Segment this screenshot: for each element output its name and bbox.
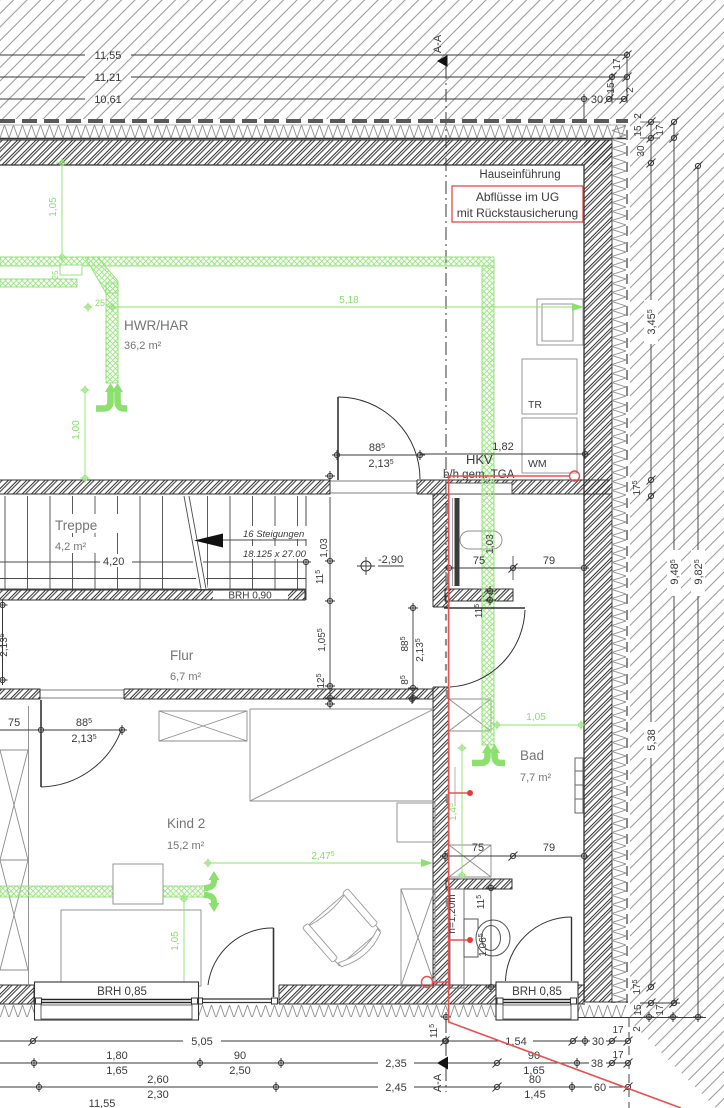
svg-text:2,50: 2,50	[229, 1065, 250, 1077]
svg-text:17: 17	[612, 58, 623, 70]
svg-text:11,55: 11,55	[89, 1098, 116, 1108]
svg-text:2,135: 2,135	[368, 458, 393, 470]
svg-text:Hauseinführung: Hauseinführung	[479, 169, 560, 181]
svg-text:15: 15	[606, 82, 617, 94]
svg-text:15: 15	[633, 125, 644, 137]
svg-text:5,05: 5,05	[191, 1036, 212, 1048]
svg-text:75: 75	[8, 717, 20, 729]
svg-text:1,05: 1,05	[48, 197, 59, 217]
svg-text:16 Steigungen: 16 Steigungen	[243, 529, 304, 540]
svg-text:60: 60	[594, 1082, 606, 1094]
svg-text:7,7 m²: 7,7 m²	[520, 772, 552, 784]
svg-text:885: 885	[76, 717, 92, 729]
svg-text:-2,90: -2,90	[378, 554, 403, 566]
svg-text:30: 30	[636, 145, 647, 157]
svg-text:25: 25	[51, 270, 60, 279]
svg-text:17: 17	[655, 124, 666, 136]
svg-text:1,82: 1,82	[492, 441, 513, 453]
svg-text:4,20: 4,20	[103, 556, 124, 568]
svg-text:mit Rückstausicherung: mit Rückstausicherung	[457, 206, 578, 220]
svg-text:6,7 m²: 6,7 m²	[170, 671, 202, 683]
svg-text:30: 30	[591, 94, 603, 106]
svg-text:2,135: 2,135	[71, 733, 96, 745]
svg-text:2,30: 2,30	[147, 1089, 168, 1101]
svg-text:1,00: 1,00	[71, 420, 82, 440]
svg-text:17: 17	[612, 1025, 624, 1036]
svg-text:2,135: 2,135	[415, 638, 426, 661]
svg-text:1,80: 1,80	[106, 1050, 127, 1062]
svg-text:Flur: Flur	[170, 648, 194, 663]
svg-text:17: 17	[612, 1050, 624, 1061]
svg-text:1,03: 1,03	[485, 534, 496, 554]
svg-text:5,18: 5,18	[339, 295, 359, 306]
svg-text:BRH 0,85: BRH 0,85	[512, 986, 562, 998]
svg-text:1,65: 1,65	[106, 1065, 127, 1077]
svg-text:85: 85	[400, 675, 411, 685]
svg-text:79: 79	[543, 555, 555, 567]
svg-text:HWR/HAR: HWR/HAR	[124, 318, 189, 333]
svg-text:2,60: 2,60	[147, 1074, 168, 1086]
svg-text:2,35: 2,35	[385, 1058, 406, 1070]
svg-text:2: 2	[625, 87, 636, 93]
svg-text:BRH 0,90: BRH 0,90	[228, 591, 272, 602]
svg-text:A-A: A-A	[432, 1073, 444, 1092]
svg-text:30: 30	[592, 1036, 604, 1048]
svg-text:11,21: 11,21	[95, 72, 122, 84]
svg-text:885: 885	[369, 442, 385, 454]
svg-text:TR: TR	[528, 399, 542, 411]
svg-text:1,05: 1,05	[170, 931, 181, 951]
svg-text:1,05: 1,05	[526, 712, 546, 723]
svg-text:1,45: 1,45	[524, 1089, 545, 1101]
svg-text:2,45: 2,45	[385, 1082, 406, 1094]
svg-text:Bad: Bad	[520, 748, 544, 763]
svg-text:WM: WM	[528, 458, 547, 470]
svg-text:A-A: A-A	[432, 34, 444, 53]
svg-text:5,38: 5,38	[646, 729, 658, 750]
svg-text:36,2 m²: 36,2 m²	[124, 340, 162, 352]
svg-text:75: 75	[472, 842, 484, 854]
svg-text:1,03: 1,03	[319, 538, 330, 558]
svg-text:18.125 x 27.00: 18.125 x 27.00	[243, 549, 307, 560]
svg-text:2: 2	[633, 113, 644, 119]
svg-text:115: 115	[429, 1024, 440, 1038]
svg-text:17: 17	[655, 1004, 666, 1016]
svg-text:HKV: HKV	[466, 452, 493, 467]
svg-text:75: 75	[473, 555, 485, 567]
svg-text:Treppe: Treppe	[55, 518, 97, 533]
svg-text:11,55: 11,55	[95, 50, 122, 62]
svg-text:2,475: 2,475	[311, 851, 334, 862]
svg-text:b/h gem. TGA: b/h gem. TGA	[443, 469, 515, 481]
svg-text:15: 15	[633, 1004, 644, 1016]
svg-text:38: 38	[591, 1058, 603, 1070]
svg-text:Abflüsse im UG: Abflüsse im UG	[476, 190, 559, 204]
svg-text:90: 90	[234, 1050, 246, 1062]
svg-text:885: 885	[400, 636, 411, 651]
svg-text:1,055: 1,055	[317, 628, 328, 651]
svg-text:125: 125	[316, 673, 327, 688]
svg-text:80: 80	[529, 1074, 541, 1086]
svg-text:79: 79	[543, 842, 555, 854]
svg-text:1,45: 1,45	[448, 803, 459, 821]
svg-text:2: 2	[632, 1026, 643, 1032]
svg-text:15,2 m²: 15,2 m²	[167, 840, 205, 852]
svg-text:10,61: 10,61	[94, 94, 122, 106]
svg-text:115: 115	[315, 570, 326, 584]
svg-text:25: 25	[95, 298, 105, 308]
svg-text:Kind 2: Kind 2	[167, 816, 205, 831]
svg-text:115: 115	[476, 895, 487, 909]
svg-text:BRH 0,85: BRH 0,85	[97, 986, 147, 998]
svg-text:2,135: 2,135	[0, 633, 10, 656]
svg-text:4,2 m²: 4,2 m²	[55, 541, 87, 553]
